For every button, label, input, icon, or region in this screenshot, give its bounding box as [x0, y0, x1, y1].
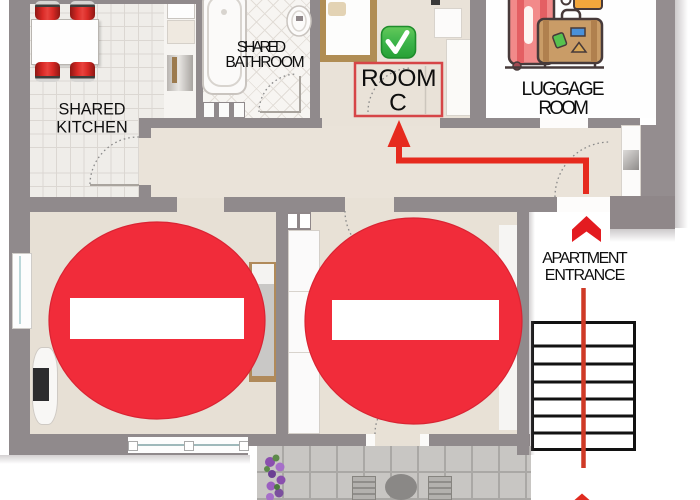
svg-text:APARTMENT: APARTMENT [542, 250, 628, 267]
svg-text:KITCHEN: KITCHEN [56, 118, 128, 136]
svg-text:LUGGAGE: LUGGAGE [522, 79, 605, 100]
svg-text:C: C [389, 90, 407, 117]
svg-text:ROOM: ROOM [361, 65, 437, 92]
svg-text:ROOM: ROOM [538, 98, 589, 119]
svg-text:SHARED: SHARED [59, 100, 126, 118]
svg-text:ENTRANCE: ENTRANCE [545, 267, 626, 284]
svg-text:BATHROOM: BATHROOM [225, 54, 304, 71]
